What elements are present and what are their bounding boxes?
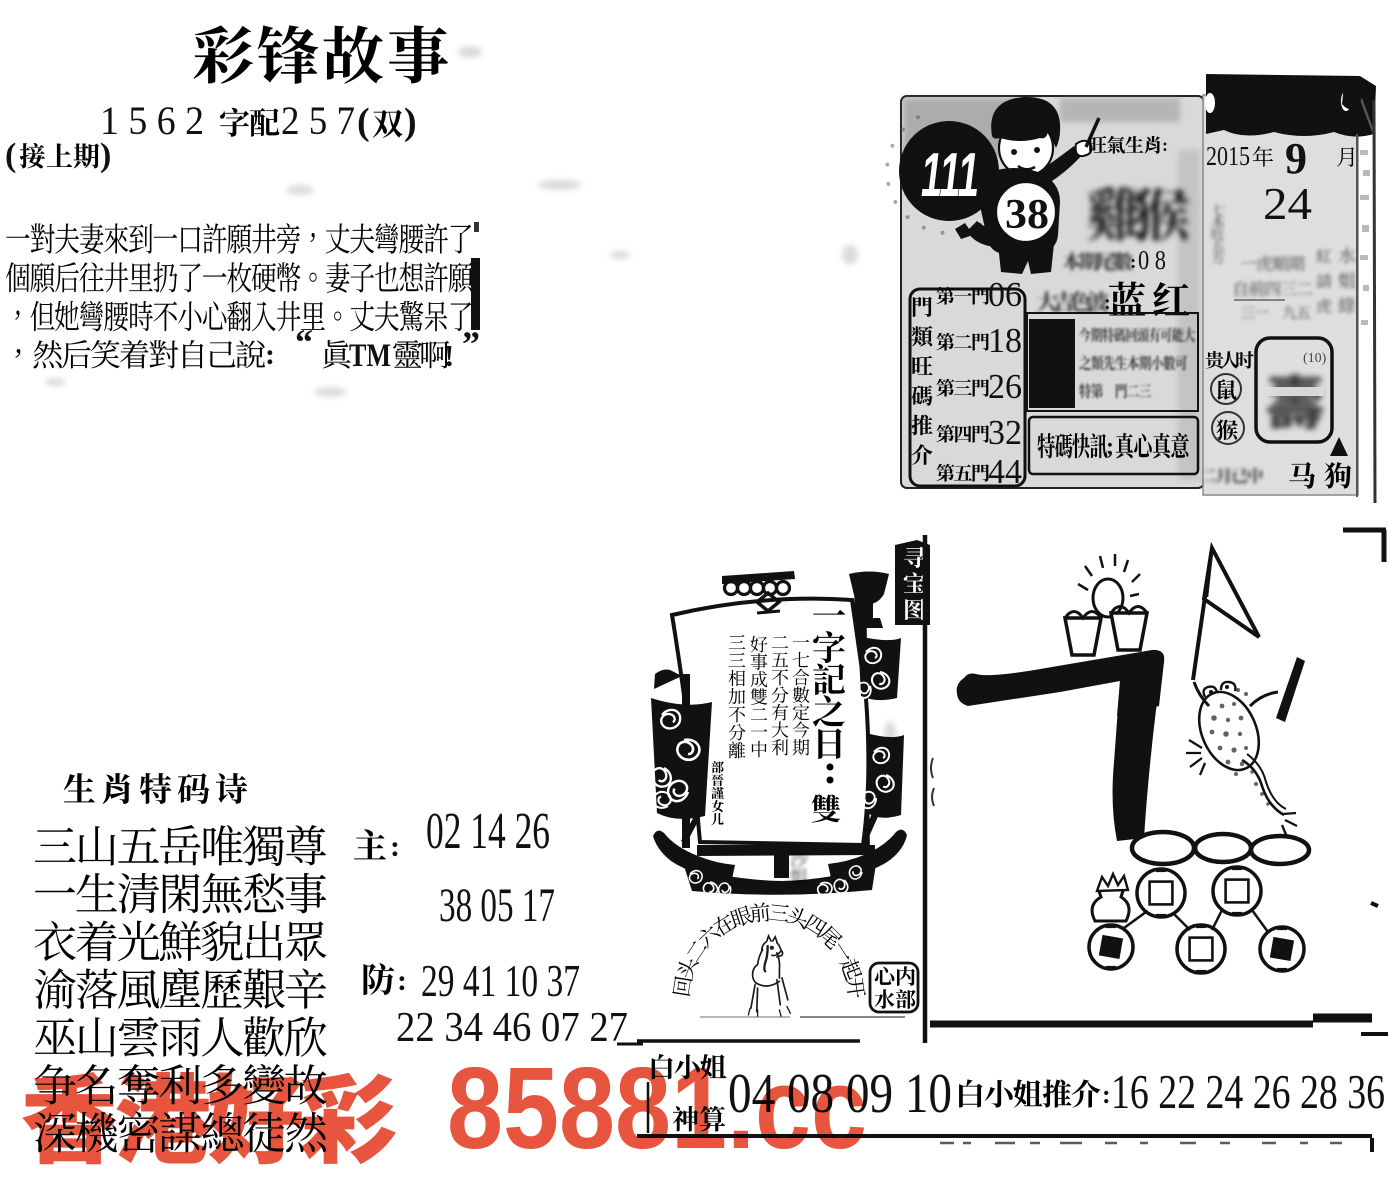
svg-text:): ) bbox=[100, 137, 111, 174]
svg-text:(: ( bbox=[357, 101, 370, 143]
svg-text:“: “ bbox=[295, 322, 313, 362]
svg-text:18: 18 bbox=[988, 321, 1022, 360]
svg-text:(: ( bbox=[5, 137, 16, 174]
svg-text::: : bbox=[390, 830, 400, 863]
svg-text:1 5 6 2: 1 5 6 2 bbox=[100, 98, 204, 143]
svg-text:38: 38 bbox=[1005, 192, 1049, 238]
svg-text:06: 06 bbox=[988, 275, 1022, 314]
svg-text:29 41 10 37: 29 41 10 37 bbox=[421, 955, 580, 1006]
svg-text::: : bbox=[397, 964, 407, 997]
svg-text:111: 111 bbox=[921, 141, 979, 210]
svg-text:24: 24 bbox=[1263, 178, 1312, 229]
svg-text:32: 32 bbox=[988, 413, 1022, 452]
svg-text:02 14 26: 02 14 26 bbox=[426, 803, 550, 860]
svg-text:9: 9 bbox=[1285, 134, 1307, 183]
svg-text:): ) bbox=[404, 101, 417, 143]
svg-text:2 5 7: 2 5 7 bbox=[281, 98, 355, 143]
svg-text:(10): (10) bbox=[1303, 351, 1327, 366]
svg-text::: : bbox=[1130, 252, 1136, 273]
svg-text:85881.cc: 85881.cc bbox=[447, 1043, 867, 1173]
svg-text:2015: 2015 bbox=[1206, 141, 1250, 171]
svg-text:26: 26 bbox=[988, 367, 1022, 406]
svg-text::: : bbox=[265, 338, 275, 371]
svg-text:38 05 17: 38 05 17 bbox=[439, 879, 555, 932]
svg-text:!: ! bbox=[444, 338, 454, 373]
svg-text:;: ; bbox=[1106, 434, 1114, 460]
svg-text:16 22 24 26 28 36: 16 22 24 26 28 36 bbox=[1111, 1064, 1385, 1119]
svg-text:0 8: 0 8 bbox=[1138, 245, 1166, 275]
svg-text:44: 44 bbox=[988, 452, 1022, 491]
svg-text::: : bbox=[1104, 292, 1111, 314]
svg-text::: : bbox=[1162, 135, 1168, 155]
svg-text::: : bbox=[1102, 1080, 1111, 1109]
svg-text:TM: TM bbox=[349, 338, 391, 374]
